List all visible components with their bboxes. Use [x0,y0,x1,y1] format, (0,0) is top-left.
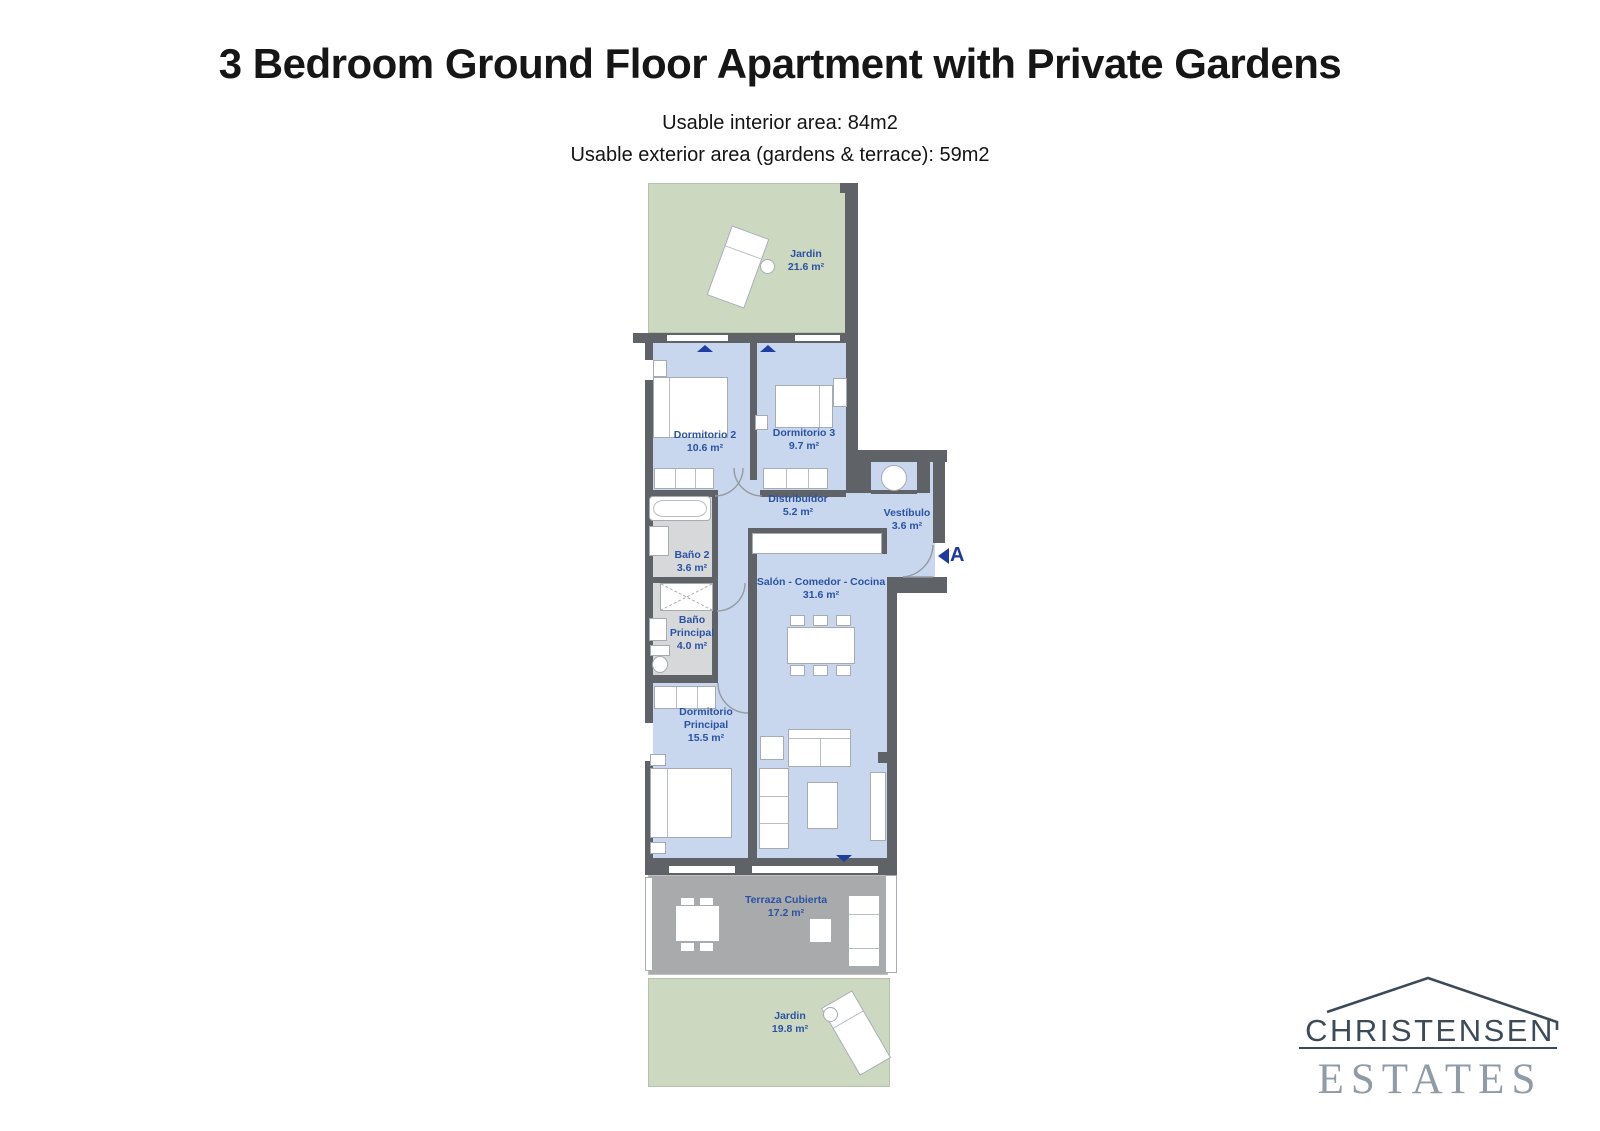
exterior-area-subtitle: Usable exterior area (gardens & terrace)… [0,144,1560,167]
wall-garden-right [845,183,858,333]
closet-dorm3-icon [763,468,828,489]
entrance-label: A [950,544,964,567]
shower-icon [660,583,713,611]
terrace-chair-icon [699,942,714,952]
window-dorm3 [795,335,840,341]
wall-dorm3-right [846,333,858,462]
washing-machine-icon [881,465,907,491]
floorplan-page: { "header": { "title": "3 Bedroom Ground… [0,0,1600,1131]
entrance-arrow-icon [938,548,949,564]
window-marker-icon [697,345,713,352]
interior-area-subtitle: Usable interior area: 84m2 [0,112,1560,135]
floor-plan: A Jardin21.6 m² Dormitorio 210.6 m² Dorm… [630,178,970,1093]
room-label-bano-principal: BañoPrincipal4.0 m² [670,614,714,653]
terrace-chair-icon [680,942,695,952]
wall-washer-left [846,462,871,493]
wall-vestibulo-right [933,462,945,543]
logo-name: CHRISTENSEN [1305,1013,1555,1049]
room-label-salon: Salón - Comedor - Cocina31.6 m² [757,576,885,602]
bathtub-icon [649,496,711,521]
terrace-lounger-icon [848,895,880,967]
window-dorm2 [667,335,728,341]
terrace-pillar [885,875,897,973]
logo-subname: ESTATES [1318,1055,1543,1104]
wall-salon-right [887,593,897,858]
room-label-dormitorio3: Dormitorio 39.7 m² [773,427,835,453]
nightstand-icon [755,415,768,430]
logo-divider [1299,1047,1557,1049]
closet-dorm2-icon [654,468,714,489]
sink-bath2-icon [649,526,669,556]
dining-chair-icon [813,615,828,626]
room-label-bano2: Baño 23.6 m² [674,549,709,575]
wall-below-entrance [887,577,947,593]
window-marker-icon [836,855,852,862]
sofa-icon [788,729,851,767]
room-label-garden-bottom: Jardin19.8 m² [772,1010,808,1036]
bed-dorm3-icon [775,385,833,428]
room-label-terraza: Terraza Cubierta17.2 m² [745,894,827,920]
terrace-side-table-icon [809,918,832,943]
nightstand-icon [650,754,666,766]
window-left-dorm2 [645,360,653,380]
bed-dormp-icon [650,768,732,838]
wall-salon-right-notch [878,752,887,763]
room-label-garden-top: Jardin21.6 m² [788,248,824,274]
wall-vestibulo-top [846,450,947,462]
garden-side-table-icon [823,1007,838,1022]
sink-bathp-icon [649,618,667,641]
dining-chair-icon [836,665,851,676]
room-label-dormitorio2: Dormitorio 210.6 m² [674,429,736,455]
entrance-marker: A [938,544,964,567]
agency-logo: CHRISTENSEN ESTATES [1280,955,1580,1115]
page-title: 3 Bedroom Ground Floor Apartment with Pr… [0,40,1560,88]
terrace-table-icon [675,905,720,942]
kitchen-counter-icon [752,533,882,554]
room-label-vestibulo: Vestíbulo3.6 m² [884,507,931,533]
dining-chair-icon [836,615,851,626]
chaise-icon [759,768,789,849]
garden-side-table-icon [760,259,775,274]
pillow-icon [833,378,847,407]
pillow-icon [653,360,667,377]
dining-chair-icon [790,665,805,676]
dining-table-icon [787,627,855,664]
toilet-bowl-icon [652,656,668,673]
terrace-pillar [645,877,653,971]
window-marker-icon [760,345,776,352]
dining-chair-icon [813,665,828,676]
glass-door-salon-terrace [752,866,878,873]
wall-bath-divider2 [645,675,712,683]
wall-dorm2-dorm3-divider [750,343,757,480]
room-label-dormitorio-principal: DormitorioPrincipal15.5 m² [679,706,733,745]
tv-sideboard-icon [870,772,886,841]
nightstand-icon [650,842,666,854]
side-table-icon [760,736,784,760]
wall-salon-left [748,528,757,868]
room-label-distribuidor: Distribuidor5.2 m² [768,493,828,519]
wall-washer-right [917,462,930,493]
toilet-icon [650,645,670,656]
window-dormp-bottom [669,866,735,873]
dining-chair-icon [790,615,805,626]
coffee-table-icon [807,782,838,829]
